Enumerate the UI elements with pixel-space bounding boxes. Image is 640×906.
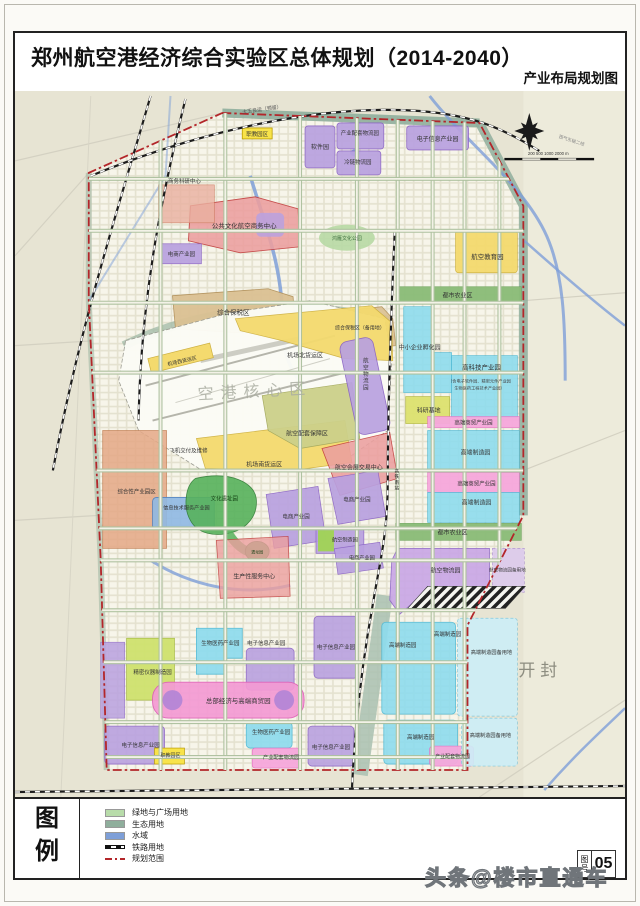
plan-sheet: 郑州航空港经济综合实验区总体规划（2014-2040） 产业布局规划图	[0, 0, 640, 906]
map-label: 鸿雁文化公园	[332, 235, 362, 242]
map-label: 航空物流园	[363, 357, 369, 392]
map-label: 电商产业园	[349, 553, 375, 561]
legend-label: 绿地与广场用地	[132, 807, 188, 818]
map-label: 生物医药工程技术产业园）	[454, 385, 504, 392]
legend-row-green-space: 绿地与广场用地	[105, 808, 188, 817]
map-label: 高端制造园	[407, 733, 435, 741]
title-bar: 郑州航空港经济综合实验区总体规划（2014-2040） 产业布局规划图	[15, 33, 625, 93]
map-label: 高端商贸产业园	[454, 419, 493, 427]
legend-swatch-water	[105, 832, 125, 840]
map-label: 都市农业区	[443, 292, 473, 300]
map-label: 职教园区	[246, 130, 268, 138]
scale-bar	[504, 158, 594, 160]
legend-swatch-railway	[105, 845, 125, 849]
map-label: 产业配套物流园	[435, 753, 470, 760]
map-label: 电子信息产业园	[317, 643, 356, 651]
map-label: 航空配套保障区	[286, 430, 328, 438]
map-label: 都市农业区	[438, 528, 468, 536]
map-label: 高端制造园备用地	[471, 648, 512, 656]
legend-swatch-ecological	[105, 820, 125, 828]
map-label: 航空制造园	[332, 535, 358, 543]
map-label: （含电子软件园、精密元件产业园	[448, 378, 511, 385]
map-label: 机场北货运区	[287, 352, 323, 360]
map-label: 高端制造园	[434, 630, 462, 638]
map-label: 综合保税区	[217, 308, 250, 317]
map-label: 生物医药产业园	[201, 639, 240, 647]
map-label: 高端制造园	[389, 641, 417, 649]
map-label: 生物医药产业园	[252, 728, 291, 736]
map-label: 电子信息产业园	[312, 743, 351, 751]
map-label: 航空物流园备用地	[489, 566, 526, 573]
map-label: 电商产业园	[343, 495, 371, 503]
map-label: 高端制造园	[461, 448, 491, 456]
map-label: 高端商贸产业园	[457, 479, 496, 487]
map-label: 电商产业园	[168, 250, 196, 258]
scale-bar	[522, 158, 540, 160]
map-label: 文化遗址园	[211, 494, 239, 502]
map-subtitle: 产业布局规划图	[524, 67, 619, 87]
map-label: 职教园区	[161, 752, 181, 759]
map-label: 电子信息产业园	[417, 135, 459, 143]
map-label: 科研基地	[417, 407, 441, 415]
map-label: 冷链物流园	[344, 158, 372, 166]
map-label: 航空物流园	[431, 566, 461, 574]
watermark: 头条@楼市直通车	[425, 862, 608, 892]
legend-items: 绿地与广场用地 生态用地 水域 铁路用地 规划范围	[105, 808, 188, 866]
legend-label: 生态用地	[132, 819, 164, 830]
map-label: 生产性服务中心	[233, 572, 275, 580]
plan-frame: 郑州航空港经济综合实验区总体规划（2014-2040） 产业布局规划图	[13, 31, 627, 880]
map-label: 高铁南站	[395, 467, 400, 491]
map-shape	[163, 690, 183, 710]
map-label: 中小企业孵化园	[399, 344, 441, 352]
map-label: 遗址园	[251, 548, 263, 554]
legend-label: 水域	[132, 830, 148, 841]
map-label: 电子信息产业园	[121, 741, 160, 749]
map-label: 软件园	[311, 143, 329, 151]
map-label: 信息技术服务产业园	[163, 503, 210, 511]
legend-row-water: 水域	[105, 831, 188, 840]
map-label: 高端制造园备用地	[470, 731, 511, 739]
legend-swatch-green-space	[105, 809, 125, 817]
legend-label: 铁路用地	[132, 842, 164, 853]
map-label: 综合保税区（备用地）	[335, 325, 385, 332]
map-label: 开封	[518, 661, 562, 680]
map-label: 总部经济与高端商贸园	[206, 696, 271, 705]
map-label: 高端制造园	[462, 498, 492, 506]
map-label: 公共文化航空商务中心	[212, 221, 277, 230]
map-label: 高科技产业园	[462, 363, 501, 372]
map-shape	[428, 492, 520, 522]
map-area: 大玉良运（预留）职教园区软件园产业配套物流园冷链物流园电子信息产业园商务科研中心…	[15, 91, 625, 797]
map-shape	[274, 690, 294, 710]
map-label: 航空教育园	[471, 252, 503, 261]
map-label: 商务科研中心	[168, 177, 201, 185]
business-research	[159, 185, 215, 223]
legend-label: 规划范围	[132, 853, 164, 864]
legend-row-boundary: 规划范围	[105, 854, 188, 863]
industry-layout-map: 大玉良运（预留）职教园区软件园产业配套物流园冷链物流园电子信息产业园商务科研中心…	[15, 91, 625, 797]
map-label: 综合性产业园区	[117, 487, 156, 495]
map-label: 精密仪器制造园	[133, 668, 172, 676]
map-label: 电子信息产业园	[247, 639, 286, 647]
kaifeng-area	[523, 91, 625, 797]
legend-row-ecological: 生态用地	[105, 820, 188, 829]
map-label: 机场南货运区	[246, 460, 282, 468]
map-shapes-layer	[15, 91, 625, 797]
legend-row-railway: 铁路用地	[105, 843, 188, 852]
map-label: 200 500 1000 2000 m	[528, 151, 569, 156]
map-label: 飞机交付及维修	[169, 446, 208, 454]
map-label: 电商产业园	[282, 512, 310, 520]
map-label: 航空会展交易中心	[335, 463, 383, 471]
scale-bar	[558, 158, 576, 160]
legend-title: 图 例	[15, 799, 80, 878]
producer-service-center	[216, 536, 290, 598]
legend-title-char: 例	[15, 839, 79, 865]
legend-title-char: 图	[15, 806, 79, 832]
map-label: 产业配套物流园	[341, 129, 380, 137]
legend-swatch-boundary	[105, 858, 125, 860]
map-label: 产业配套物流园	[263, 753, 299, 761]
